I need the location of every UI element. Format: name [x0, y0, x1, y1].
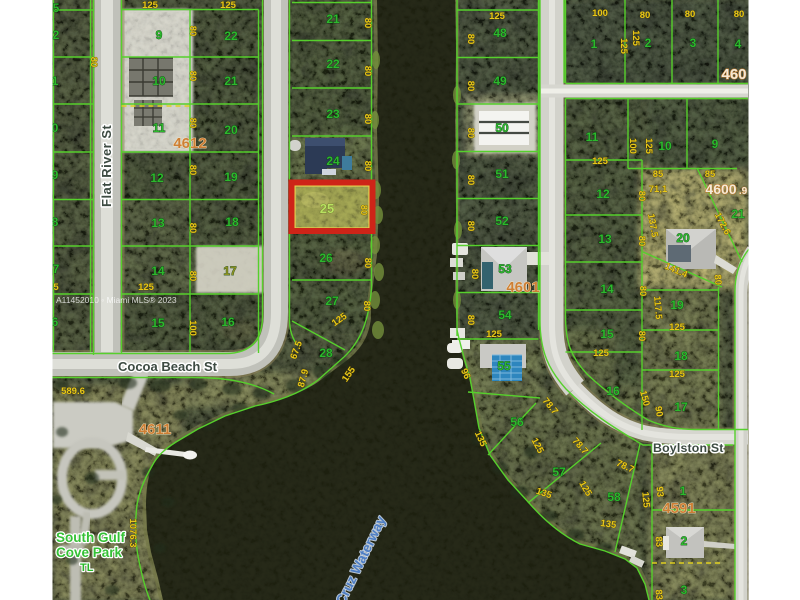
svg-text:21: 21 — [731, 207, 745, 221]
svg-text:125: 125 — [592, 156, 609, 167]
svg-text:125: 125 — [643, 138, 654, 155]
svg-text:10: 10 — [658, 139, 672, 153]
svg-text:57: 57 — [552, 465, 566, 479]
svg-text:21: 21 — [326, 12, 340, 26]
svg-text:80: 80 — [362, 258, 373, 269]
svg-text:71,1: 71,1 — [649, 184, 668, 195]
svg-text:125: 125 — [630, 30, 641, 47]
svg-text:85: 85 — [653, 169, 664, 180]
svg-text:80: 80 — [734, 9, 745, 20]
svg-text:26: 26 — [319, 251, 333, 265]
svg-text:25: 25 — [320, 201, 334, 216]
svg-text:16: 16 — [606, 384, 620, 398]
svg-text:83: 83 — [653, 589, 665, 600]
svg-text:6: 6 — [52, 315, 59, 329]
svg-text:135: 135 — [600, 518, 618, 531]
svg-text:125: 125 — [489, 11, 506, 22]
svg-text:125: 125 — [142, 0, 159, 11]
svg-text:54: 54 — [498, 308, 512, 322]
svg-text:1: 1 — [680, 484, 687, 498]
svg-text:56: 56 — [510, 415, 524, 429]
svg-text:14: 14 — [600, 282, 614, 296]
svg-text:18: 18 — [225, 215, 239, 229]
svg-text:80: 80 — [712, 274, 724, 285]
svg-text:100: 100 — [592, 8, 608, 19]
svg-text:Cove Park: Cove Park — [56, 545, 123, 560]
svg-text:80: 80 — [640, 10, 651, 21]
svg-text:80: 80 — [187, 165, 198, 176]
svg-text:11: 11 — [586, 130, 599, 144]
svg-text:4601: 4601 — [506, 279, 539, 296]
svg-text:80: 80 — [361, 301, 372, 312]
svg-text:80: 80 — [187, 71, 198, 82]
svg-text:4591: 4591 — [662, 500, 695, 517]
svg-text:24: 24 — [326, 154, 340, 168]
svg-text:51: 51 — [495, 167, 509, 181]
svg-text:80: 80 — [636, 236, 647, 247]
svg-text:80: 80 — [465, 128, 476, 139]
svg-text:125: 125 — [669, 369, 686, 380]
svg-text:80: 80 — [685, 9, 696, 20]
svg-text:18: 18 — [674, 349, 688, 363]
svg-text:50: 50 — [495, 121, 509, 135]
svg-text:Flat River St: Flat River St — [99, 124, 114, 207]
svg-text:3: 3 — [690, 36, 697, 50]
svg-text:2: 2 — [53, 28, 60, 42]
svg-text:80: 80 — [636, 191, 647, 202]
svg-text:52: 52 — [495, 214, 509, 228]
svg-text:80: 80 — [187, 118, 198, 129]
svg-text:23: 23 — [326, 107, 340, 121]
svg-text:9: 9 — [712, 137, 719, 151]
svg-text:83: 83 — [653, 536, 665, 547]
svg-text:8: 8 — [52, 215, 59, 229]
svg-text:11: 11 — [153, 121, 166, 135]
svg-text:2: 2 — [645, 36, 652, 50]
svg-text:90: 90 — [652, 405, 665, 417]
svg-text:4611: 4611 — [139, 421, 172, 438]
svg-text:4600: 4600 — [705, 181, 736, 197]
svg-text:15: 15 — [151, 316, 165, 330]
svg-text:80: 80 — [465, 34, 476, 45]
svg-text:19: 19 — [670, 298, 684, 312]
svg-text:125: 125 — [639, 491, 651, 508]
svg-text:1076.3: 1076.3 — [127, 518, 138, 547]
svg-text:1: 1 — [591, 37, 598, 51]
svg-text:.9: .9 — [739, 186, 748, 197]
svg-text:1: 1 — [52, 74, 59, 88]
svg-text:80: 80 — [465, 175, 476, 186]
svg-text:85: 85 — [705, 169, 716, 180]
svg-text:21: 21 — [224, 74, 238, 88]
svg-text:80: 80 — [637, 286, 648, 297]
svg-text:589.6: 589.6 — [61, 386, 85, 397]
svg-text:19: 19 — [224, 170, 238, 184]
svg-text:100: 100 — [627, 138, 638, 154]
svg-text:460: 460 — [721, 66, 746, 83]
svg-text:3: 3 — [681, 583, 688, 597]
svg-text:TL: TL — [80, 562, 94, 574]
svg-text:2: 2 — [681, 534, 688, 548]
svg-text:7: 7 — [53, 262, 60, 276]
svg-text:14: 14 — [151, 264, 165, 278]
svg-text:80: 80 — [362, 114, 373, 125]
svg-text:49: 49 — [493, 74, 507, 88]
svg-text:5: 5 — [53, 282, 59, 293]
svg-text:125: 125 — [618, 38, 629, 55]
svg-text:27: 27 — [325, 294, 339, 308]
svg-text:80: 80 — [465, 315, 476, 326]
svg-text:80: 80 — [636, 331, 647, 342]
svg-text:100: 100 — [187, 320, 198, 336]
svg-text:80: 80 — [362, 161, 373, 172]
svg-text:125: 125 — [669, 322, 686, 333]
svg-text:125: 125 — [486, 329, 503, 340]
svg-text:0: 0 — [52, 121, 59, 135]
svg-text:80: 80 — [465, 81, 476, 92]
svg-text:55: 55 — [497, 359, 511, 373]
svg-text:16: 16 — [221, 315, 235, 329]
svg-text:13: 13 — [598, 232, 612, 246]
svg-text:22: 22 — [326, 57, 340, 71]
svg-text:4612: 4612 — [173, 135, 206, 152]
svg-text:Cocoa Beach St: Cocoa Beach St — [118, 359, 218, 374]
svg-text:80: 80 — [187, 271, 198, 282]
svg-text:A11452010 ◦ Miami MLS® 2023: A11452010 ◦ Miami MLS® 2023 — [56, 295, 177, 305]
svg-text:20: 20 — [676, 231, 690, 245]
svg-text:125: 125 — [138, 282, 155, 293]
svg-text:South Gulf: South Gulf — [56, 530, 125, 545]
svg-text:58: 58 — [607, 490, 621, 504]
svg-text:80: 80 — [362, 18, 373, 29]
svg-text:9: 9 — [52, 168, 59, 182]
svg-text:15: 15 — [600, 327, 614, 341]
svg-text:125: 125 — [593, 348, 610, 359]
svg-text:17: 17 — [223, 264, 237, 278]
svg-text:10: 10 — [152, 74, 166, 88]
svg-text:12: 12 — [596, 187, 610, 201]
svg-text:4: 4 — [735, 37, 742, 51]
svg-text:80: 80 — [187, 223, 198, 234]
svg-text:125: 125 — [220, 0, 237, 11]
svg-text:Boylston St: Boylston St — [653, 441, 724, 455]
svg-text:80: 80 — [88, 57, 99, 68]
svg-text:5: 5 — [53, 1, 60, 15]
svg-text:22: 22 — [224, 29, 238, 43]
svg-text:80: 80 — [187, 26, 198, 37]
svg-text:80: 80 — [362, 66, 373, 77]
svg-text:20: 20 — [224, 123, 238, 137]
svg-text:117.5: 117.5 — [651, 296, 664, 321]
svg-text:12: 12 — [150, 171, 164, 185]
svg-text:17: 17 — [674, 400, 688, 414]
svg-text:93: 93 — [654, 486, 666, 497]
svg-text:13: 13 — [151, 216, 165, 230]
svg-text:9: 9 — [156, 28, 163, 42]
svg-text:48: 48 — [493, 26, 507, 40]
svg-text:53: 53 — [498, 262, 512, 276]
svg-text:28: 28 — [319, 346, 333, 360]
svg-text:80: 80 — [465, 221, 476, 232]
svg-text:80: 80 — [469, 269, 480, 280]
svg-text:80: 80 — [358, 205, 369, 216]
